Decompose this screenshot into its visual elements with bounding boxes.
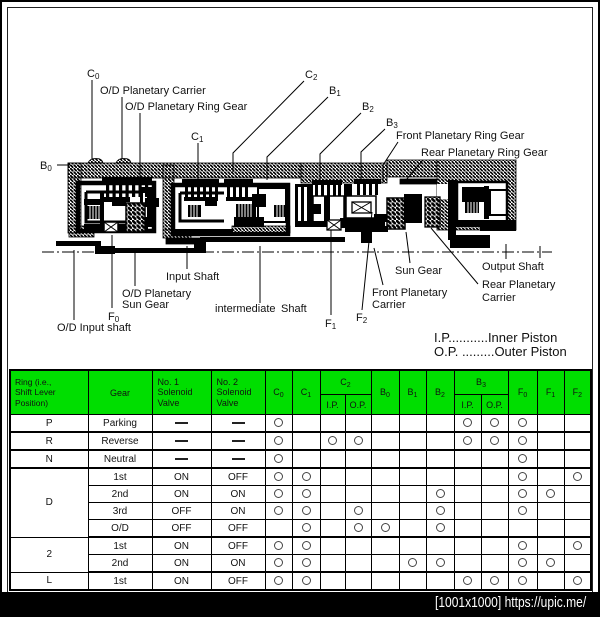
svg-text:I.P...........Inner Piston: I.P...........Inner Piston (434, 330, 557, 345)
svg-text:Output Shaft: Output Shaft (482, 261, 544, 273)
svg-text:Sun Gear: Sun Gear (395, 265, 442, 277)
svg-text:Front Planetary: Front Planetary (372, 287, 448, 299)
svg-text:B0: B0 (40, 160, 52, 173)
svg-text:B3: B3 (386, 117, 398, 130)
svg-text:Front Planetary Ring Gear: Front Planetary Ring Gear (396, 130, 525, 142)
svg-text:F1: F1 (325, 318, 337, 331)
svg-text:Rear Planetary: Rear Planetary (482, 279, 556, 291)
svg-text:C2: C2 (305, 69, 318, 82)
svg-text:F2: F2 (356, 312, 368, 325)
svg-text:Carrier: Carrier (482, 292, 516, 304)
svg-text:B2: B2 (362, 101, 374, 114)
svg-text:O/D Planetary Carrier: O/D Planetary Carrier (100, 85, 206, 97)
svg-text:O/D Input shaft: O/D Input shaft (57, 322, 131, 334)
svg-text:Carrier: Carrier (372, 299, 406, 311)
svg-text:C1: C1 (191, 131, 204, 144)
svg-text:B1: B1 (329, 85, 341, 98)
svg-text:C0: C0 (87, 68, 100, 81)
svg-text:intermediate: intermediate (215, 303, 276, 315)
svg-text:Sun Gear: Sun Gear (122, 299, 169, 311)
svg-text:O.P. .........Outer Piston: O.P. .........Outer Piston (434, 344, 567, 359)
svg-text:Input Shaft: Input Shaft (166, 271, 219, 283)
svg-text:Shaft: Shaft (281, 303, 307, 315)
svg-text:O/D Planetary Ring Gear: O/D Planetary Ring Gear (125, 101, 248, 113)
svg-text:Rear Planetary Ring Gear: Rear Planetary Ring Gear (421, 147, 548, 159)
